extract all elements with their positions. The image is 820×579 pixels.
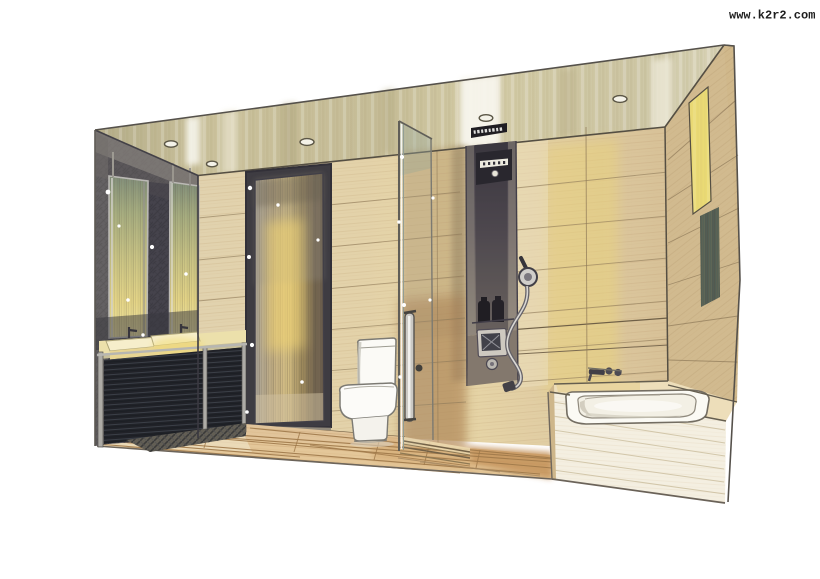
svg-text:www.k2r2.com: www.k2r2.com — [729, 9, 815, 23]
